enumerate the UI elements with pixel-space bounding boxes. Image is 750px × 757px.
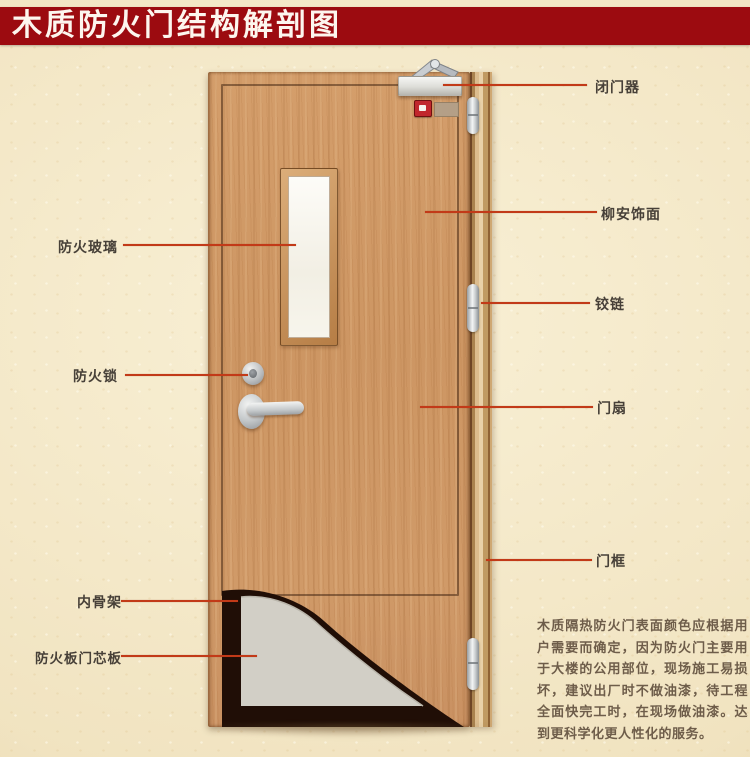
door-panel-groove [221, 84, 459, 596]
label-fire-board-core: 防火板门芯板 [35, 647, 122, 667]
label-fire-glass: 防火玻璃 [58, 237, 118, 257]
door-drop-shadow [204, 724, 500, 738]
description-paragraph: 木质隔热防火门表面颜色应根据用户需要而确定，因为防火门主要用于大楼的公用部位，现… [537, 615, 748, 744]
alarm-indicator-dot [419, 105, 426, 111]
leader-line-fire-lock [125, 374, 248, 376]
leader-line-door-closer [443, 84, 587, 86]
leader-line-lauan-veneer [425, 211, 597, 213]
label-door-frame: 门框 [596, 551, 626, 571]
label-door-leaf: 门扇 [597, 398, 627, 418]
leader-line-hinge [481, 302, 590, 304]
door-frame-strip [470, 72, 492, 727]
diagram-stage: 木质防火门结构解剖图 [0, 0, 750, 757]
door-handle-lever [247, 401, 304, 416]
label-fire-lock: 防火锁 [73, 366, 118, 386]
keyhole [249, 369, 257, 378]
leader-line-fire-board-core [121, 655, 257, 657]
label-inner-skeleton: 内骨架 [77, 592, 122, 612]
closer-mount-plate [434, 102, 459, 117]
title-banner: 木质防火门结构解剖图 [0, 7, 750, 45]
hinge-top [467, 97, 479, 134]
fire-board-core-graphic [241, 597, 423, 706]
glass-pane [288, 176, 330, 338]
hinge-bottom [467, 638, 479, 690]
label-door-closer: 闭门器 [595, 77, 640, 97]
door-leaf-image [208, 72, 470, 727]
door-closer-body [398, 76, 462, 96]
fire-glass-window [280, 168, 338, 346]
leader-line-door-leaf [420, 406, 593, 408]
label-hinge: 铰链 [595, 294, 625, 314]
leader-line-fire-glass [123, 244, 296, 246]
alarm-indicator [414, 100, 432, 117]
leader-line-inner-skeleton [121, 600, 238, 602]
hinge-middle [467, 284, 479, 332]
label-lauan-veneer: 柳安饰面 [601, 204, 661, 224]
cutaway-section [208, 577, 470, 727]
leader-line-door-frame [486, 559, 592, 561]
page-title: 木质防火门结构解剖图 [0, 7, 750, 45]
